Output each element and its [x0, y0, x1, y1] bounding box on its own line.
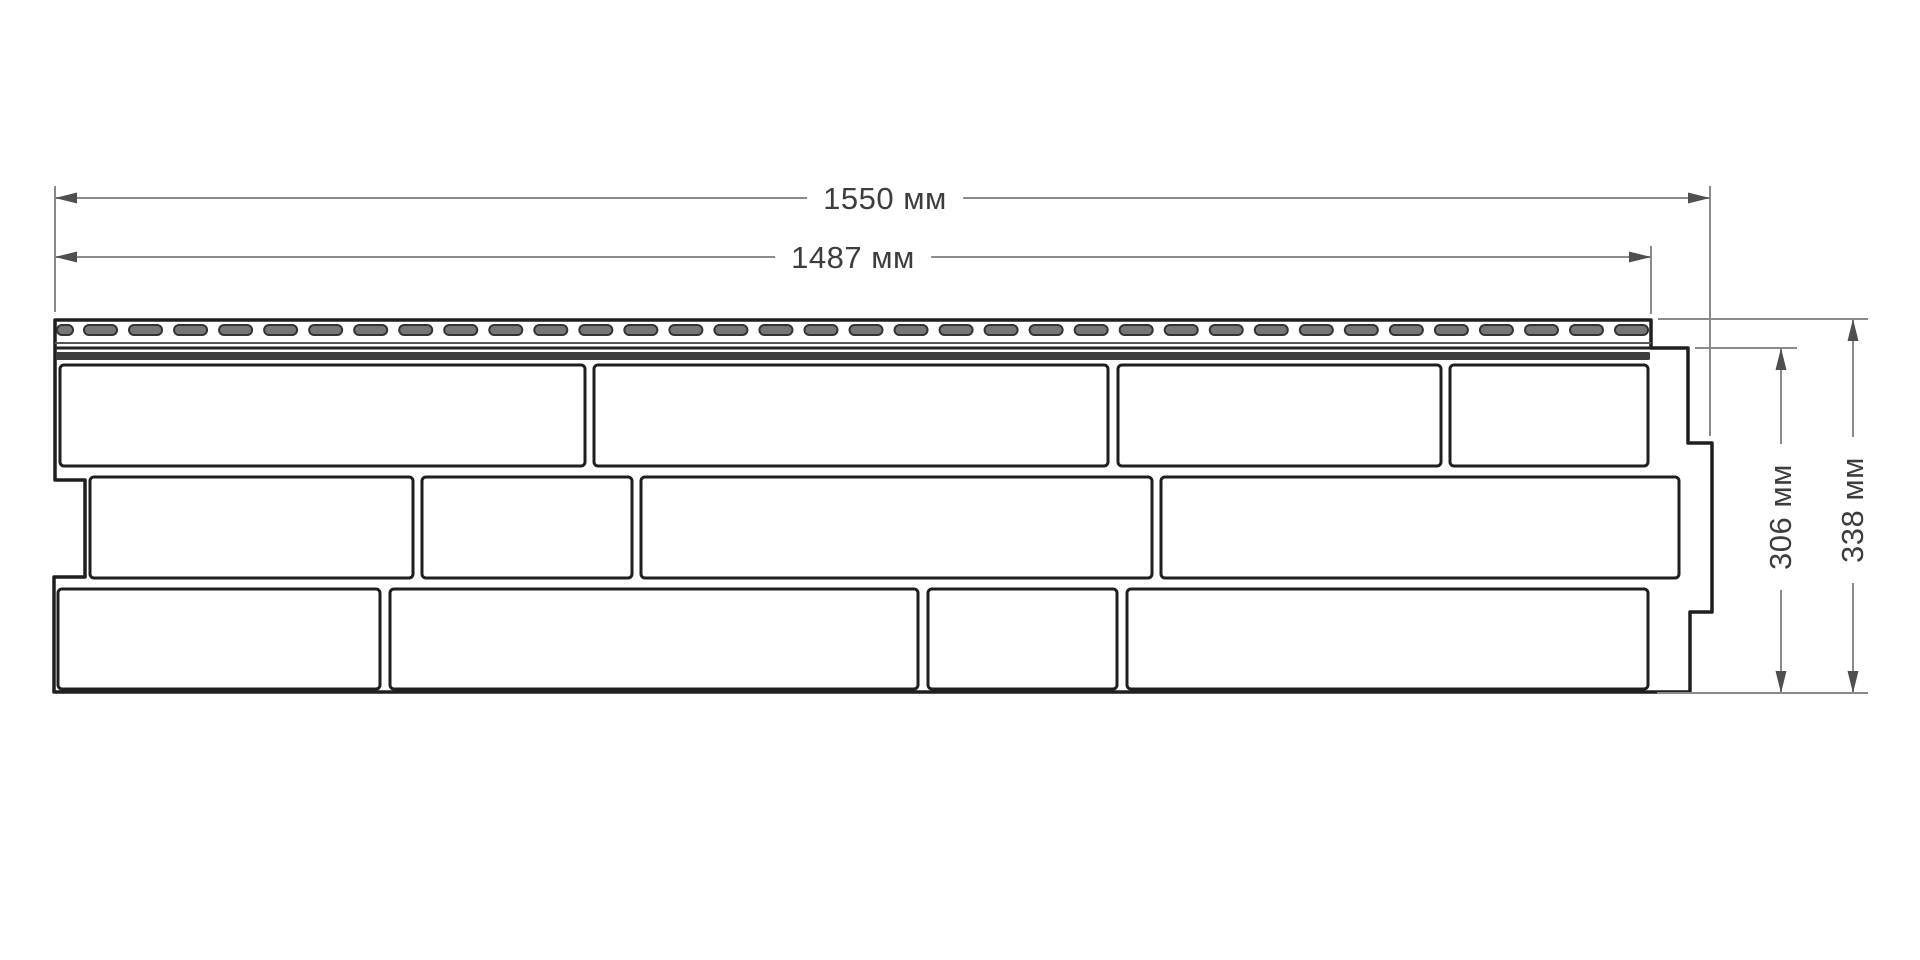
dimension-arrow: [1848, 671, 1859, 693]
perforation-slot: [804, 325, 837, 335]
perforation-slot: [219, 325, 252, 335]
perforation-slot: [354, 325, 387, 335]
perforation-slot: [1615, 325, 1648, 335]
perforation-slot: [534, 325, 567, 335]
perforation-slot: [399, 325, 432, 335]
perforation-slot: [850, 325, 883, 335]
brick: [90, 477, 413, 578]
perforation-slot: [1255, 325, 1288, 335]
dimension-arrow: [1688, 193, 1710, 204]
dim-label-total-height: 338 мм: [1833, 437, 1873, 583]
perforation-slot: [1165, 325, 1198, 335]
perforation-slot: [84, 325, 117, 335]
perforation-slot: [1345, 325, 1378, 335]
dimension-arrow: [1848, 319, 1859, 341]
perforation-slot: [1300, 325, 1333, 335]
brick: [1118, 365, 1441, 466]
perforation-slot: [579, 325, 612, 335]
brick: [422, 477, 632, 578]
nail-strip-lock-band: [56, 352, 1650, 360]
perforation-slot: [129, 325, 162, 335]
perforation-slot: [1435, 325, 1468, 335]
brick: [641, 477, 1152, 578]
dimension-arrow: [1776, 348, 1787, 370]
perforation-slot: [309, 325, 342, 335]
perforation-slot: [759, 325, 792, 335]
perforation-slot: [985, 325, 1018, 335]
perforation-slot: [1525, 325, 1558, 335]
perforation-slot: [1390, 325, 1423, 335]
dim-label-total-width: 1550 мм: [807, 179, 963, 219]
brick: [1127, 589, 1648, 689]
dim-label-body-height: 306 мм: [1761, 444, 1801, 590]
brick: [928, 589, 1117, 689]
dimension-arrow: [55, 252, 77, 263]
brick: [60, 365, 585, 466]
dimension-arrow: [55, 193, 77, 204]
perforation-slot: [174, 325, 207, 335]
perforation-slot: [1120, 325, 1153, 335]
dim-label-nail-strip-width: 1487 мм: [775, 238, 931, 278]
perforation-slot: [1480, 325, 1513, 335]
dimension-arrow: [1629, 252, 1651, 263]
perforation-slot: [895, 325, 928, 335]
perforation-slot: [1030, 325, 1063, 335]
perforation-slot: [1075, 325, 1108, 335]
brick: [390, 589, 918, 689]
brick: [1161, 477, 1679, 578]
perforation-slot: [940, 325, 973, 335]
brick: [58, 589, 380, 689]
perforation-slot: [714, 325, 747, 335]
diagram-canvas: 1550 мм 1487 мм 306 мм 338 мм: [0, 0, 1920, 960]
panel-drawing: [0, 0, 1920, 960]
dimension-arrow: [1776, 671, 1787, 693]
perforation-slot: [444, 325, 477, 335]
perforation-slot: [1570, 325, 1603, 335]
brick: [1450, 365, 1648, 466]
perforation-slot: [264, 325, 297, 335]
perforation-slot: [1210, 325, 1243, 335]
perforation-slot: [669, 325, 702, 335]
brick: [594, 365, 1108, 466]
perforation-slot: [57, 325, 73, 335]
perforation-slot: [489, 325, 522, 335]
perforation-slot: [624, 325, 657, 335]
